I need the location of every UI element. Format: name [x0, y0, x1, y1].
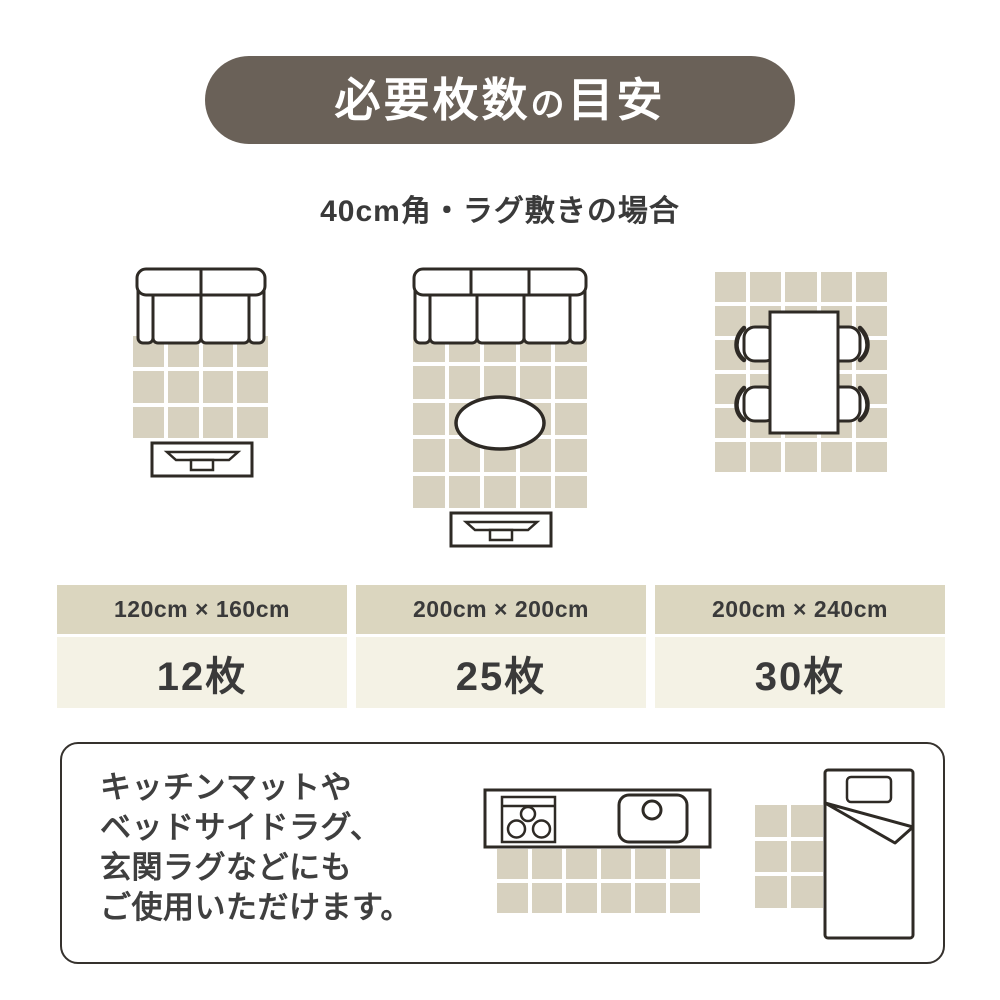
rug-tile: [555, 439, 587, 471]
rug-tile: [520, 476, 552, 508]
sofa-2seat-icon: [130, 266, 272, 346]
title-rest: 目安: [568, 74, 666, 126]
rug-tile: [566, 849, 597, 879]
sofa-backrest: [414, 269, 586, 295]
rug-tile: [203, 407, 234, 438]
kitchen-counter-icon: [483, 787, 713, 851]
sofa-cushion: [201, 290, 249, 343]
rug-tile: [203, 371, 234, 402]
subtitle: 40cm角・ラグ敷きの場合: [0, 186, 1000, 230]
rug-tile: [791, 876, 823, 908]
page-title: 必要枚数の目安: [335, 77, 666, 123]
size-column: 120cm × 160cm 12枚: [57, 585, 347, 708]
rug-tile: [755, 876, 787, 908]
note-line: ベッドサイドラグ、: [100, 808, 412, 848]
note-line: 玄関ラグなどにも: [100, 848, 412, 888]
rug-tile: [750, 442, 781, 472]
rug-tile: [413, 476, 445, 508]
tv-board-icon: [150, 441, 254, 478]
rug-tile: [555, 366, 587, 398]
tile-count: 12枚: [57, 637, 347, 708]
sofa-cushion: [430, 290, 477, 343]
rug-tile: [532, 849, 563, 879]
dining-table-icon: [728, 300, 876, 445]
sofa-cushion: [477, 290, 524, 343]
sofa-3seat-icon: [410, 266, 590, 346]
title-banner: 必要枚数の目安: [205, 56, 795, 144]
size-column: 200cm × 240cm 30枚: [655, 585, 945, 708]
rug-tile: [497, 883, 528, 913]
table-top: [770, 312, 838, 433]
rug-tile: [413, 403, 445, 435]
rug-tile: [715, 272, 746, 302]
rug-tile: [670, 883, 701, 913]
title-main: 必要枚数: [335, 74, 531, 126]
rug-tile: [755, 805, 787, 837]
rug-grid-120x160: [133, 336, 268, 438]
bed-icon: [820, 765, 918, 943]
kitchen-mat-grid: [497, 849, 700, 913]
stove-icon: [502, 797, 555, 842]
rug-tile: [413, 439, 445, 471]
rug-tile: [755, 841, 787, 873]
bedside-rug-grid: [755, 805, 823, 908]
infographic-canvas: 必要枚数の目安 40cm角・ラグ敷きの場合: [0, 0, 1000, 1000]
sink-icon: [619, 795, 687, 842]
sofa-cushion: [153, 290, 201, 343]
tv-board-icon: [449, 511, 553, 548]
rug-tile: [555, 476, 587, 508]
oval-table-icon: [452, 393, 548, 453]
rug-tile: [856, 442, 887, 472]
size-label: 120cm × 160cm: [57, 585, 347, 634]
rug-tile: [750, 272, 781, 302]
rug-tile: [601, 849, 632, 879]
rug-tile: [484, 476, 516, 508]
rug-tile: [715, 442, 746, 472]
rug-tile: [237, 371, 268, 402]
rug-tile: [449, 476, 481, 508]
tile-count: 25枚: [356, 637, 646, 708]
rug-tile: [168, 371, 199, 402]
rug-tile: [635, 883, 666, 913]
size-table: 120cm × 160cm 12枚 200cm × 200cm 25枚 200c…: [57, 585, 945, 708]
rug-tile: [601, 883, 632, 913]
size-label: 200cm × 200cm: [356, 585, 646, 634]
rug-tile: [856, 272, 887, 302]
title-particle: の: [531, 86, 568, 124]
rug-tile: [791, 805, 823, 837]
rug-tile: [133, 407, 164, 438]
sofa-cushion: [524, 290, 570, 343]
usage-note-text: キッチンマットや ベッドサイドラグ、 玄関ラグなどにも ご使用いただけます。: [100, 768, 412, 928]
rug-tile: [566, 883, 597, 913]
rug-tile: [785, 442, 816, 472]
rug-tile: [555, 403, 587, 435]
size-label: 200cm × 240cm: [655, 585, 945, 634]
rug-tile: [497, 849, 528, 879]
rug-tile: [237, 407, 268, 438]
rug-tile: [532, 883, 563, 913]
pillow-icon: [847, 777, 891, 802]
rug-tile: [133, 371, 164, 402]
rug-tile: [791, 841, 823, 873]
rug-tile: [821, 272, 852, 302]
note-line: キッチンマットや: [100, 768, 412, 808]
rug-tile: [635, 849, 666, 879]
size-column: 200cm × 200cm 25枚: [356, 585, 646, 708]
rug-tile: [168, 407, 199, 438]
rug-tile: [785, 272, 816, 302]
rug-tile: [413, 366, 445, 398]
rug-tile: [821, 442, 852, 472]
note-line: ご使用いただけます。: [100, 888, 412, 928]
tile-count: 30枚: [655, 637, 945, 708]
rug-tile: [670, 849, 701, 879]
